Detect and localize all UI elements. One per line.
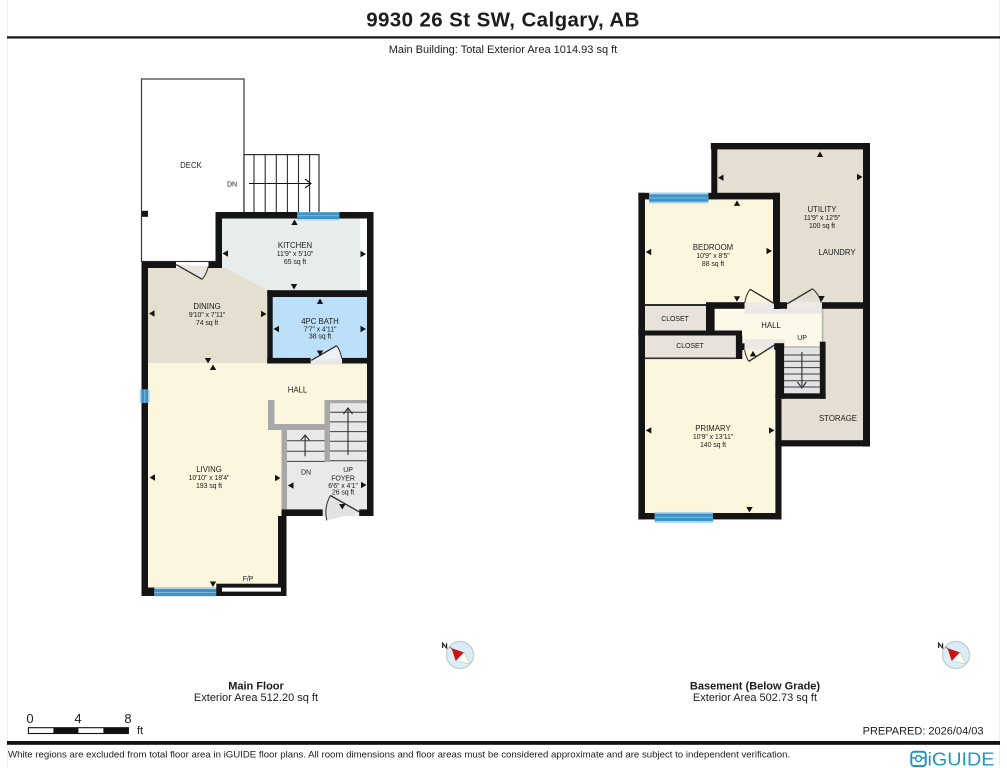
svg-text:LIVING: LIVING — [196, 465, 222, 474]
svg-text:Basement (Below Grade): Basement (Below Grade) — [690, 681, 821, 693]
svg-text:HALL: HALL — [288, 386, 308, 395]
svg-text:KITCHEN: KITCHEN — [278, 241, 312, 250]
svg-text:iGUIDE: iGUIDE — [928, 749, 995, 768]
svg-text:Exterior Area 512.20 sq ft: Exterior Area 512.20 sq ft — [194, 692, 318, 704]
svg-text:CLOSET: CLOSET — [661, 316, 689, 323]
svg-text:10'10" x 18'4": 10'10" x 18'4" — [189, 475, 230, 482]
svg-text:10'9" x 13'11": 10'9" x 13'11" — [693, 434, 734, 441]
svg-text:DINING: DINING — [193, 302, 220, 311]
svg-text:74 sq ft: 74 sq ft — [196, 320, 218, 327]
svg-text:PREPARED: 2026/04/03: PREPARED: 2026/04/03 — [863, 726, 984, 738]
svg-text:FOYER: FOYER — [331, 476, 355, 483]
svg-text:F/P: F/P — [243, 576, 254, 583]
svg-text:UP: UP — [343, 467, 353, 474]
svg-text:193 sq ft: 193 sq ft — [196, 483, 222, 490]
svg-text:UP: UP — [797, 335, 807, 342]
svg-text:ft: ft — [137, 725, 143, 737]
svg-text:38 sq ft: 38 sq ft — [309, 334, 331, 341]
svg-text:CLOSET: CLOSET — [676, 343, 704, 350]
svg-text:4: 4 — [74, 711, 81, 726]
svg-text:PRIMARY: PRIMARY — [695, 424, 731, 433]
svg-text:65 sq ft: 65 sq ft — [284, 259, 306, 266]
svg-text:STORAGE: STORAGE — [819, 414, 857, 423]
svg-text:100 sq ft: 100 sq ft — [809, 223, 835, 230]
svg-text:HALL: HALL — [761, 321, 781, 330]
svg-text:26 sq ft: 26 sq ft — [332, 490, 354, 497]
svg-text:9'10" x 7'11": 9'10" x 7'11" — [189, 312, 226, 319]
svg-text:Main Building: Total Exterior: Main Building: Total Exterior Area 1014.… — [389, 44, 618, 56]
svg-text:DN: DN — [301, 470, 311, 477]
svg-text:DECK: DECK — [180, 161, 202, 170]
svg-text:8: 8 — [124, 711, 131, 726]
svg-text:11'9" x 5'10": 11'9" x 5'10" — [277, 251, 314, 258]
svg-text:DN: DN — [227, 182, 237, 189]
svg-text:88 sq ft: 88 sq ft — [702, 261, 724, 268]
svg-text:LAUNDRY: LAUNDRY — [818, 248, 856, 257]
svg-text:BEDROOM: BEDROOM — [693, 243, 733, 252]
svg-text:Main Floor: Main Floor — [228, 681, 284, 693]
svg-text:0: 0 — [26, 711, 33, 726]
svg-text:10'9" x 8'5": 10'9" x 8'5" — [696, 253, 730, 260]
svg-text:7'7" x 4'11": 7'7" x 4'11" — [304, 327, 337, 334]
svg-text:Exterior Area 502.73 sq ft: Exterior Area 502.73 sq ft — [693, 692, 817, 704]
svg-text:White regions are excluded fro: White regions are excluded from total fl… — [8, 749, 790, 760]
svg-text:4PC BATH: 4PC BATH — [301, 317, 339, 326]
svg-text:11'9" x 12'5": 11'9" x 12'5" — [804, 215, 841, 222]
svg-text:9930 26 St SW, Calgary, AB: 9930 26 St SW, Calgary, AB — [366, 9, 640, 32]
svg-text:140 sq ft: 140 sq ft — [700, 442, 726, 449]
svg-text:UTILITY: UTILITY — [807, 205, 837, 214]
